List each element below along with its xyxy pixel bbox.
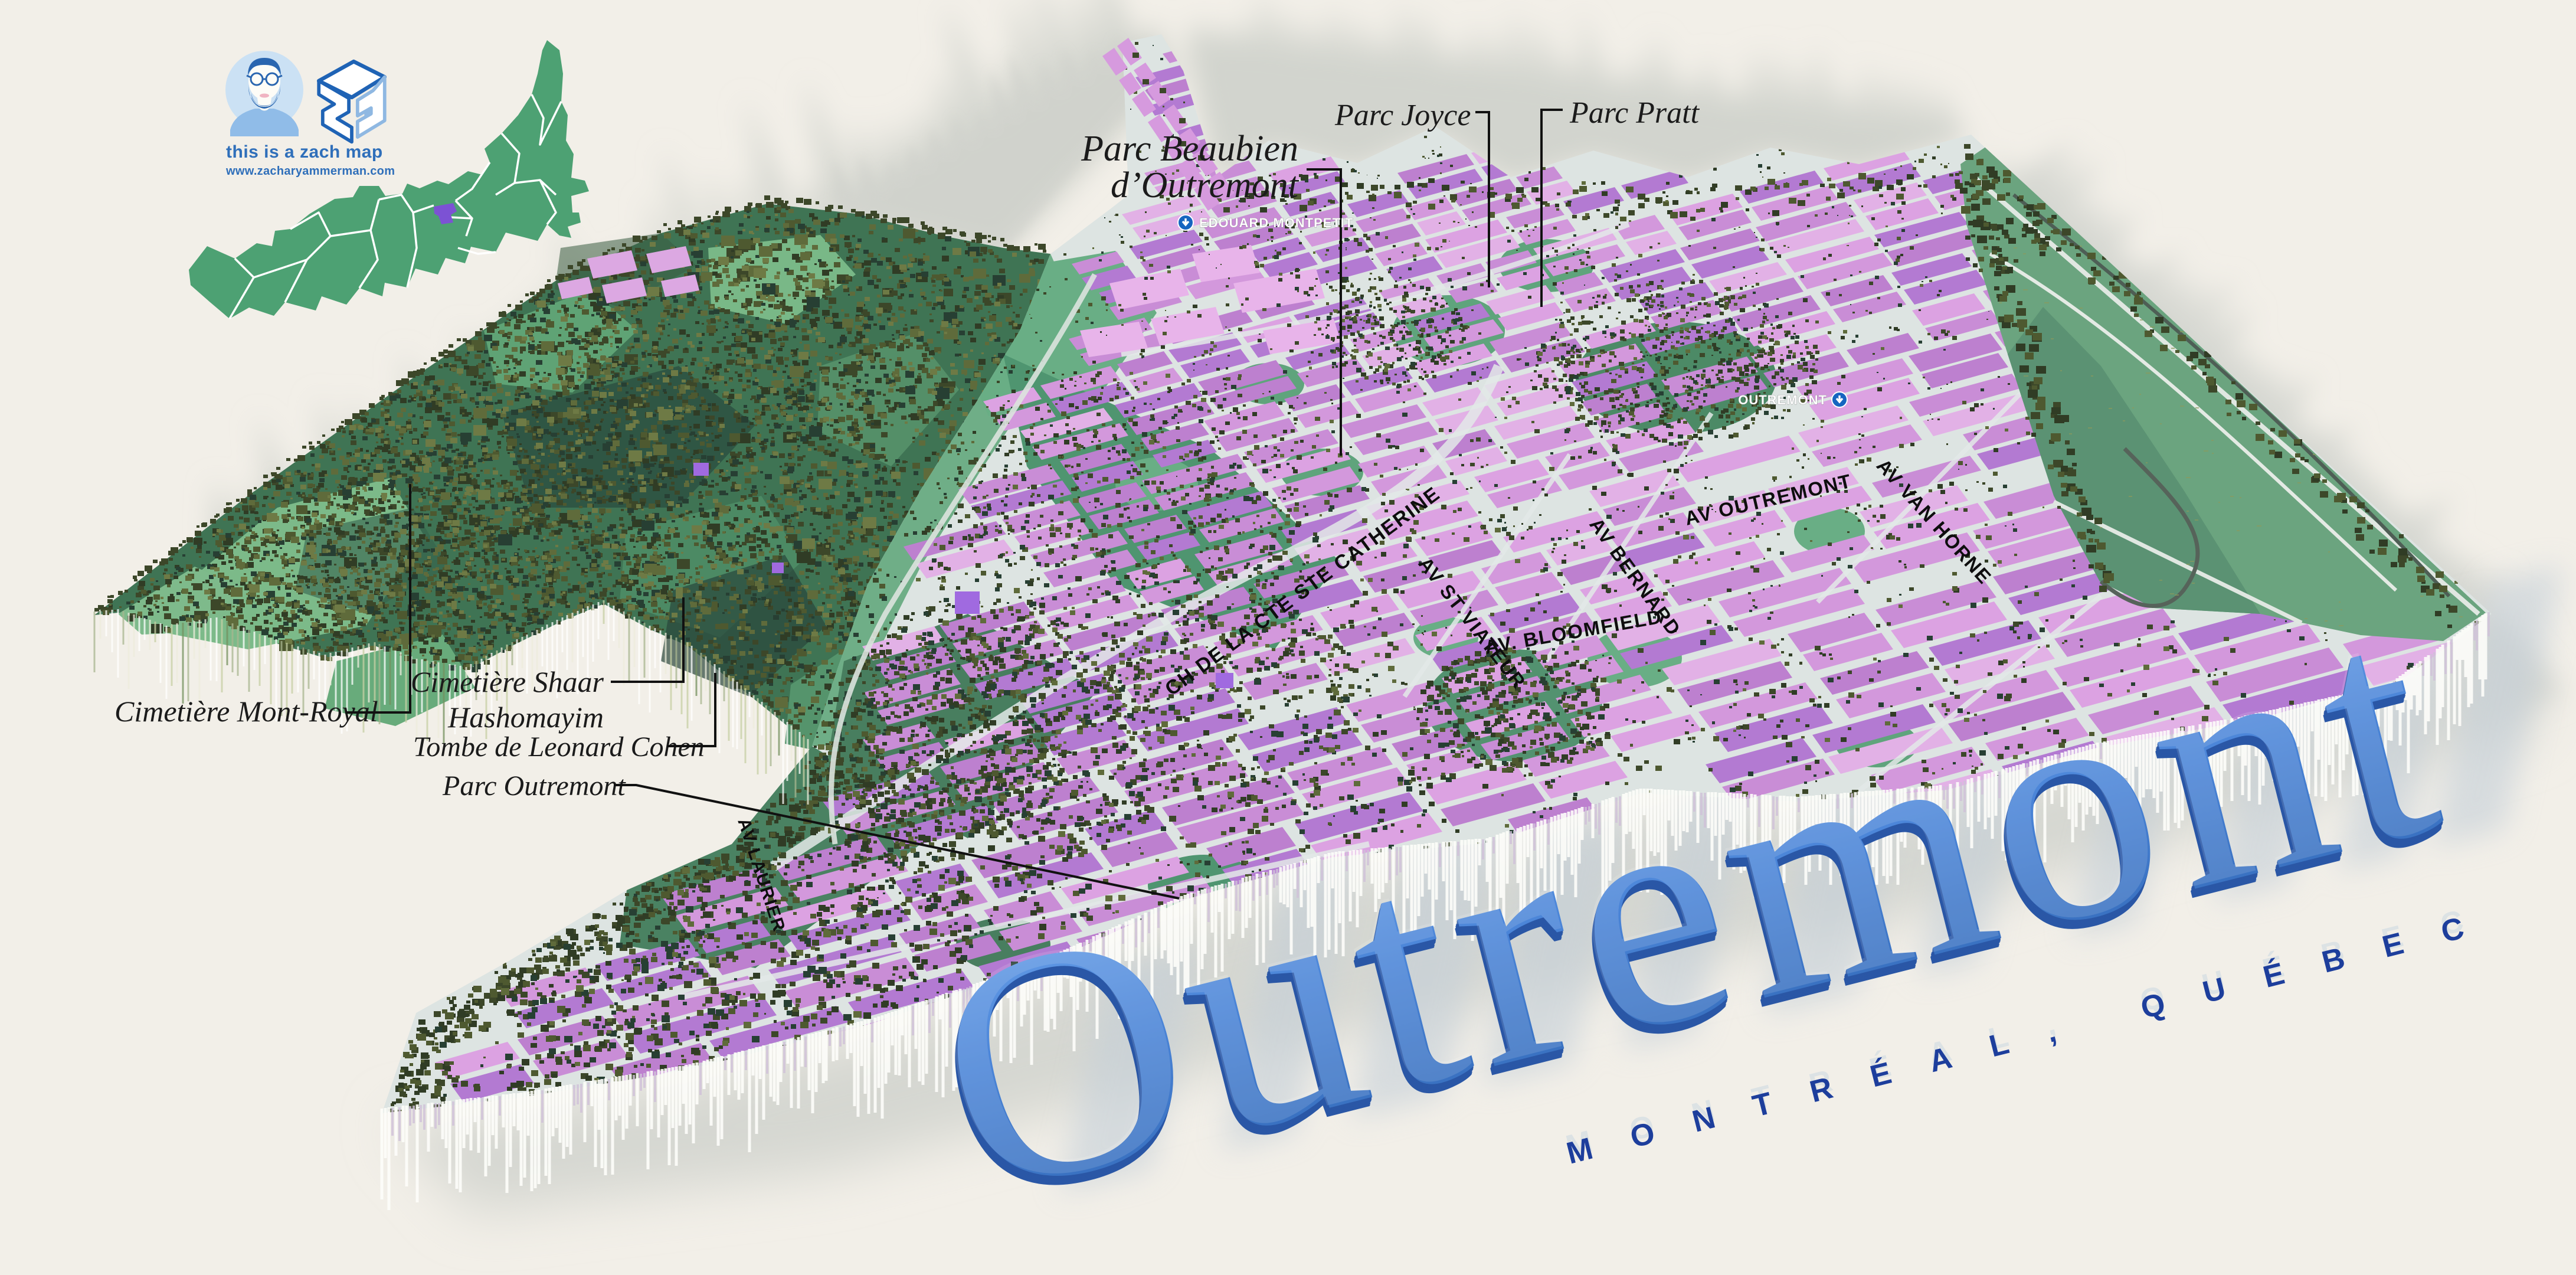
svg-text:Parc Beaubien: Parc Beaubien bbox=[1081, 129, 1298, 169]
svg-text:Parc Pratt: Parc Pratt bbox=[1569, 96, 1700, 130]
svg-text:this is a zach map: this is a zach map bbox=[226, 142, 383, 162]
svg-text:Hashomayim: Hashomayim bbox=[447, 701, 604, 734]
svg-text:Parc Joyce: Parc Joyce bbox=[1334, 99, 1471, 132]
svg-text:d’Outremont: d’Outremont bbox=[1111, 165, 1300, 205]
svg-text:Parc Outremont: Parc Outremont bbox=[442, 770, 626, 802]
svg-text:EDOUARD MONTPETIT: EDOUARD MONTPETIT bbox=[1199, 215, 1353, 230]
svg-text:Cimetière Mont-Royal: Cimetière Mont-Royal bbox=[114, 695, 378, 728]
svg-text:OUTREMONT: OUTREMONT bbox=[1738, 393, 1827, 407]
svg-text:Cimetière Shaar: Cimetière Shaar bbox=[411, 665, 604, 698]
svg-text:www.zacharyammerman.com: www.zacharyammerman.com bbox=[225, 165, 395, 178]
svg-text:Tombe de Leonard Cohen: Tombe de Leonard Cohen bbox=[413, 731, 705, 763]
